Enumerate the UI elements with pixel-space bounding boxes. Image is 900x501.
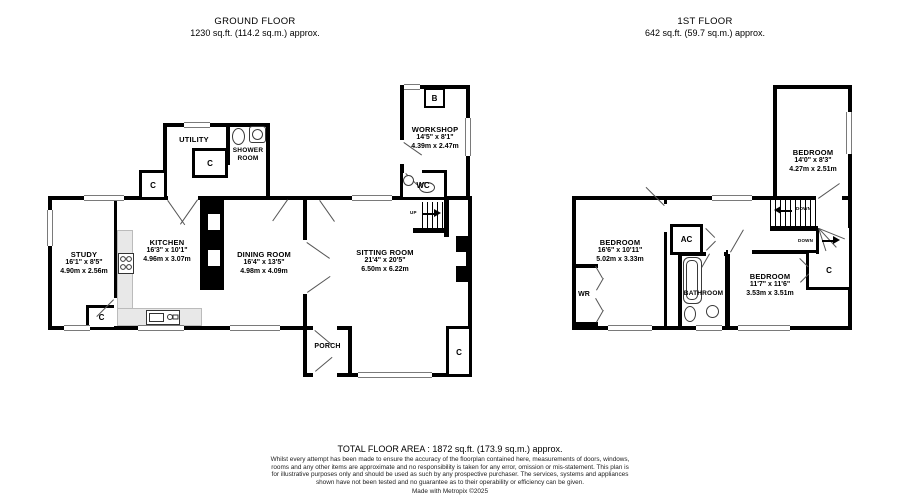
- window: [696, 325, 722, 331]
- stairs-down-label: DOWN: [798, 238, 813, 243]
- toilet-icon: [684, 306, 696, 322]
- cupboard-label: C: [86, 307, 117, 327]
- window: [230, 325, 280, 331]
- window: [738, 325, 790, 331]
- boiler-label: B: [432, 94, 438, 103]
- stairs-down-label: DOWN: [796, 206, 811, 211]
- wall: [114, 196, 117, 298]
- window: [184, 122, 210, 128]
- kitchen-label: KITCHEN 16'3" x 10'1" 4.96m x 3.07m: [130, 238, 204, 265]
- bathroom-label: BATHROOM: [678, 290, 729, 298]
- dining-room-label: DINING ROOM 16'4" x 13'5" 4.98m x 4.09m: [226, 250, 302, 277]
- boiler-box: B: [424, 88, 445, 108]
- stairs-up-label: UP: [410, 210, 417, 215]
- disclaimer-text: Whilst every attempt has been made to en…: [268, 456, 632, 487]
- wall: [413, 228, 449, 233]
- sitting-room-label: SITTING ROOM 21'4" x 20'5" 6.50m x 6.22m: [330, 248, 440, 275]
- window: [712, 195, 752, 201]
- credit-text: Made with Metropix ©2025: [0, 488, 900, 495]
- bedroom1-outline: [773, 85, 852, 200]
- first-floor-title: 1ST FLOOR: [555, 16, 855, 28]
- shower-room-label: SHOWER ROOM: [228, 147, 268, 163]
- sink-icon: [706, 305, 719, 318]
- fireplace-alcove: [456, 252, 466, 266]
- bedroom2-label: BEDROOM 16'6" x 10'11" 5.02m x 3.33m: [576, 238, 664, 265]
- ground-floor-header: GROUND FLOOR 1230 sq.ft. (114.2 sq.m.) a…: [105, 16, 405, 39]
- window: [138, 325, 184, 331]
- fireplace-alcove: [208, 214, 220, 230]
- stairs-down-arrow-icon: [774, 206, 792, 215]
- wc-label: WC: [412, 179, 434, 191]
- utility-label: UTILITY: [164, 135, 224, 144]
- window: [404, 84, 420, 90]
- window: [608, 325, 652, 331]
- door-opening: [313, 373, 337, 377]
- cupboard-label: C: [192, 153, 228, 173]
- ground-floor-area: 1230 sq.ft. (114.2 sq.m.) approx.: [105, 28, 405, 39]
- cupboard-label: C: [139, 175, 167, 195]
- total-floor-area: TOTAL FLOOR AREA : 1872 sq.ft. (173.9 sq…: [0, 444, 900, 454]
- cupboard-label: C: [446, 342, 472, 362]
- window: [47, 210, 53, 246]
- toilet-icon: [232, 128, 245, 145]
- shower-drain-icon: [252, 129, 263, 140]
- floorplan-canvas: GROUND FLOOR 1230 sq.ft. (114.2 sq.m.) a…: [0, 0, 900, 501]
- wall: [770, 226, 818, 231]
- window: [352, 195, 392, 201]
- cupboard-label: C: [806, 260, 852, 280]
- stairs-up-arrow-icon: [423, 209, 441, 218]
- window: [84, 195, 124, 201]
- door-opening: [664, 204, 667, 232]
- workshop-label: WORKSHOP 14'5" x 8'1" 4.39m x 2.47m: [402, 125, 468, 152]
- kitchen-sink-icon: [146, 310, 180, 325]
- fireplace-alcove: [208, 250, 220, 266]
- door-opening: [168, 196, 198, 200]
- airing-cupboard-label: AC: [670, 229, 703, 249]
- ground-floor-title: GROUND FLOOR: [105, 16, 405, 28]
- door-opening: [313, 326, 337, 330]
- shower-icon: [249, 126, 266, 143]
- first-floor-area: 642 sq.ft. (59.7 sq.m.) approx.: [555, 28, 855, 39]
- first-floor-header: 1ST FLOOR 642 sq.ft. (59.7 sq.m.) approx…: [555, 16, 855, 39]
- stairs-down-arrow-icon: [822, 236, 840, 245]
- study-label: STUDY 16'1" x 8'5" 4.90m x 2.56m: [50, 250, 118, 277]
- bedroom3-label: BEDROOM 11'7" x 11'6" 3.53m x 3.51m: [728, 272, 812, 299]
- porch-label: PORCH: [303, 343, 352, 352]
- door-opening: [404, 170, 422, 173]
- wardrobe-label: WR: [572, 287, 596, 301]
- window: [358, 372, 432, 378]
- door-opening: [303, 240, 307, 294]
- bedroom1-label: BEDROOM 14'0" x 8'3" 4.27m x 2.51m: [776, 148, 850, 175]
